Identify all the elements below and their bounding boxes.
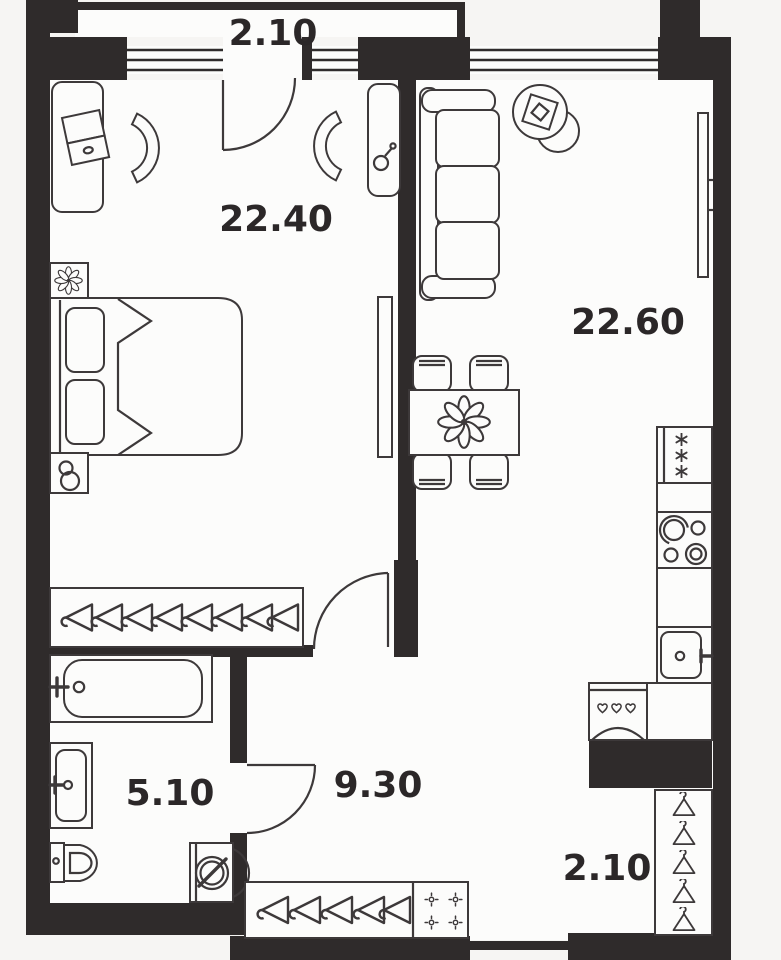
wall-bottom-right [568, 933, 731, 960]
dining-chair [413, 356, 451, 392]
wall-top-right-riser [660, 0, 700, 37]
radiator [378, 297, 392, 457]
side-desk [368, 84, 400, 196]
fridge [657, 427, 712, 483]
window-small [312, 46, 358, 74]
loggia-furniture [655, 790, 712, 935]
flower-icon [438, 396, 490, 448]
floor-plan: 2.10 22.40 22.60 5.10 9.30 2.10 [0, 0, 781, 960]
dining-chair [470, 453, 508, 489]
bathroom-sink [50, 743, 92, 828]
bathtub [50, 655, 212, 722]
window-living [470, 46, 658, 74]
bed [50, 298, 242, 455]
room-label-bathroom: 5.10 [126, 773, 215, 814]
floor-plan-svg: 2.10 22.40 22.60 5.10 9.30 2.10 [0, 0, 781, 960]
wall-bottom-left [26, 903, 247, 935]
room-label-bedroom: 22.40 [219, 199, 333, 240]
counter-corner [647, 683, 712, 740]
flower-icon [55, 267, 83, 295]
wall-top-left-corner [26, 0, 78, 33]
wall-kitchen-loggia [589, 740, 712, 788]
kitchen-sink [657, 627, 712, 683]
wall-bath-upper [230, 653, 247, 763]
room-label-balcony-top: 2.10 [229, 13, 318, 54]
room-label-loggia-bottom: 2.10 [563, 848, 652, 889]
counter [657, 483, 712, 512]
wardrobe-bedroom [50, 588, 303, 647]
balcony-parapet-top [75, 2, 465, 10]
washer-kitchen [589, 683, 647, 740]
hallway-furniture [245, 882, 468, 938]
wall-bottom-thin [470, 941, 568, 950]
wall-left [26, 33, 50, 935]
wall-top-band-left [26, 37, 127, 80]
dining-chair [413, 453, 451, 489]
pillow [66, 380, 104, 444]
room-label-hallway: 9.30 [334, 765, 423, 806]
wall-top-pier [358, 37, 470, 80]
balcony-parapet-side [457, 2, 465, 37]
toilet [50, 843, 97, 882]
window-bedroom [127, 46, 223, 74]
wall-bottom-center [230, 936, 470, 960]
sofa [420, 88, 499, 300]
pillow [66, 308, 104, 372]
wardrobe-hallway [245, 882, 468, 938]
wall-divider-block [394, 560, 418, 657]
dining-chair [470, 356, 508, 392]
wall-right [713, 80, 731, 960]
cooktop [657, 512, 712, 568]
counter [657, 568, 712, 627]
wall-top-band-right [658, 37, 731, 80]
room-label-living: 22.60 [571, 302, 685, 343]
